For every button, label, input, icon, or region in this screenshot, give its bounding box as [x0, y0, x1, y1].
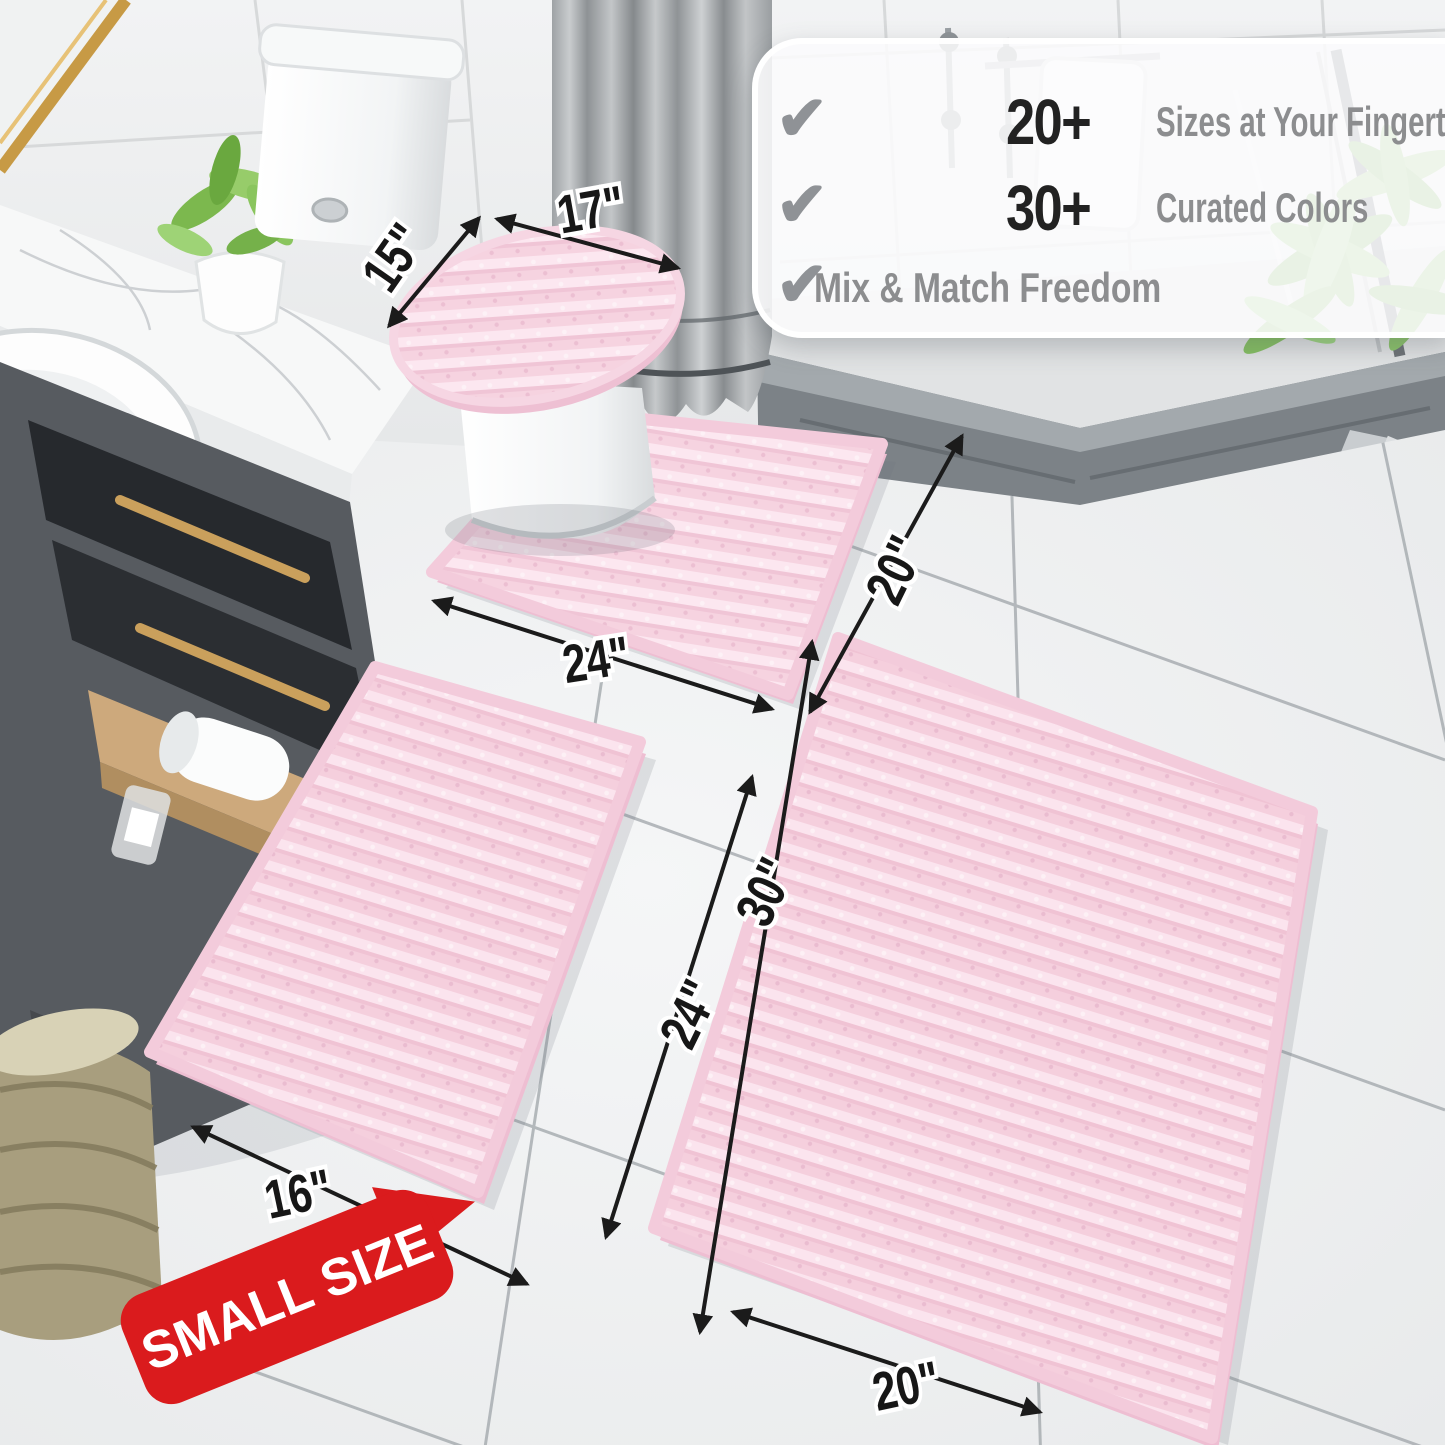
check-icon: ✔ — [776, 175, 828, 237]
feature-row: ✔ 20+ Sizes at Your Fingertips — [758, 90, 1445, 154]
feature-label: Curated Colors — [1156, 187, 1368, 229]
toilet-tank — [243, 23, 465, 252]
feature-label: Mix & Match Freedom — [814, 267, 1161, 309]
feature-count: 20+ — [1006, 90, 1090, 154]
feature-count: 30+ — [1006, 176, 1090, 240]
feature-callout-box: ✔ 20+ Sizes at Your Fingertips ✔ 30+ Cur… — [752, 38, 1445, 338]
plant-pot — [196, 252, 284, 334]
dim-label-lid-width: 17" — [553, 175, 629, 246]
feature-row: ✔ Mix & Match Freedom — [758, 256, 1445, 320]
product-image: 17" 15" 24" 20" 30" 24" 16" 20" SMALL SI… — [0, 0, 1445, 1445]
feature-label: Sizes at Your Fingertips — [1156, 101, 1445, 143]
feature-row: ✔ 30+ Curated Colors — [758, 176, 1445, 240]
check-icon: ✔ — [776, 89, 828, 151]
dim-label-contour-width: 24" — [559, 625, 634, 695]
